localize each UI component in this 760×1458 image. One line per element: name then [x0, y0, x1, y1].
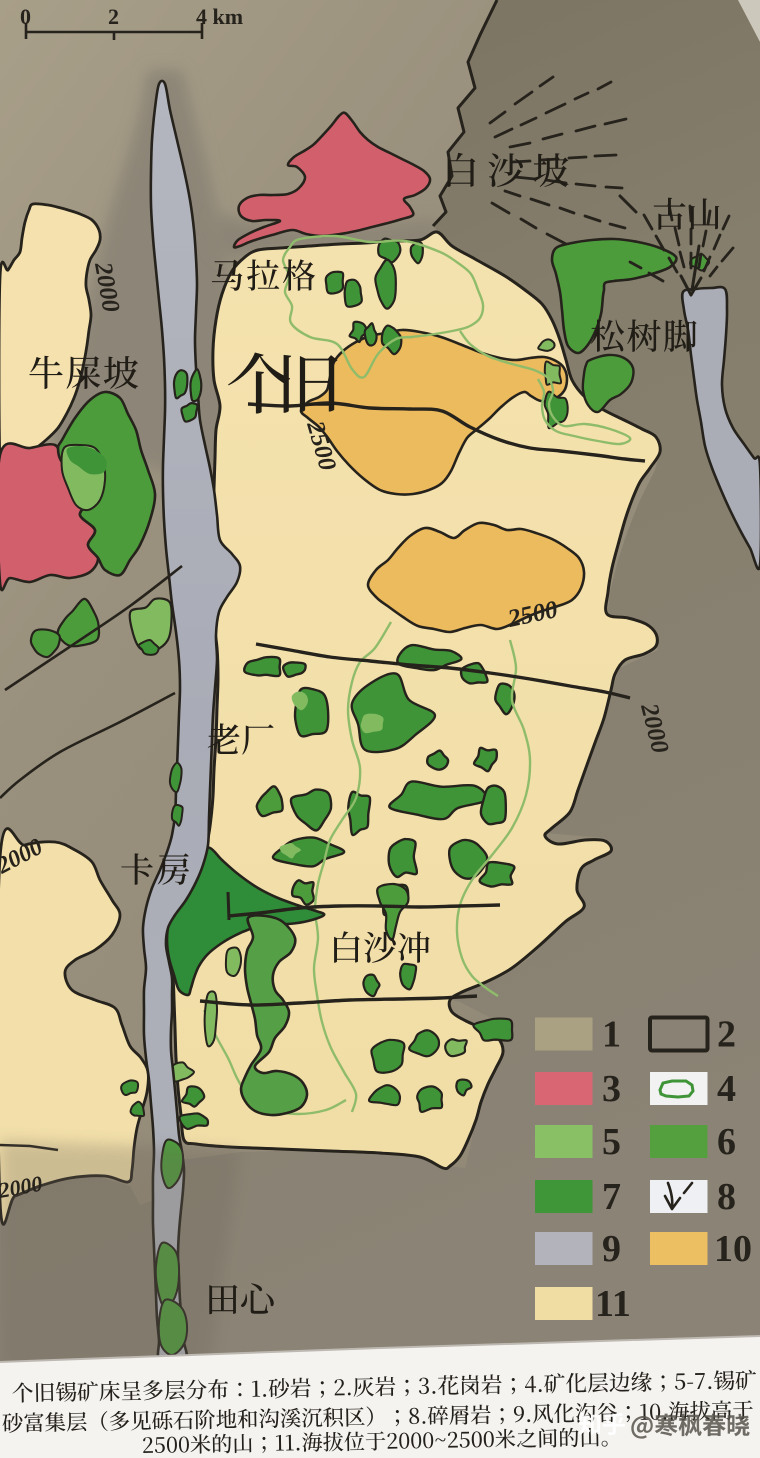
- svg-text:7: 7: [602, 1176, 621, 1218]
- svg-text:4 km: 4 km: [196, 4, 243, 29]
- svg-text:0: 0: [20, 4, 31, 29]
- svg-text:5: 5: [602, 1121, 621, 1163]
- svg-text:8: 8: [717, 1176, 736, 1218]
- svg-text:2: 2: [717, 1014, 736, 1056]
- svg-text:2: 2: [108, 4, 119, 29]
- svg-text:6: 6: [717, 1121, 736, 1163]
- svg-text:9: 9: [602, 1228, 621, 1270]
- svg-text:1: 1: [602, 1014, 621, 1056]
- svg-text:10: 10: [714, 1228, 752, 1270]
- svg-text:11: 11: [595, 1283, 631, 1325]
- svg-text:3: 3: [602, 1068, 621, 1110]
- svg-text:4: 4: [717, 1068, 736, 1110]
